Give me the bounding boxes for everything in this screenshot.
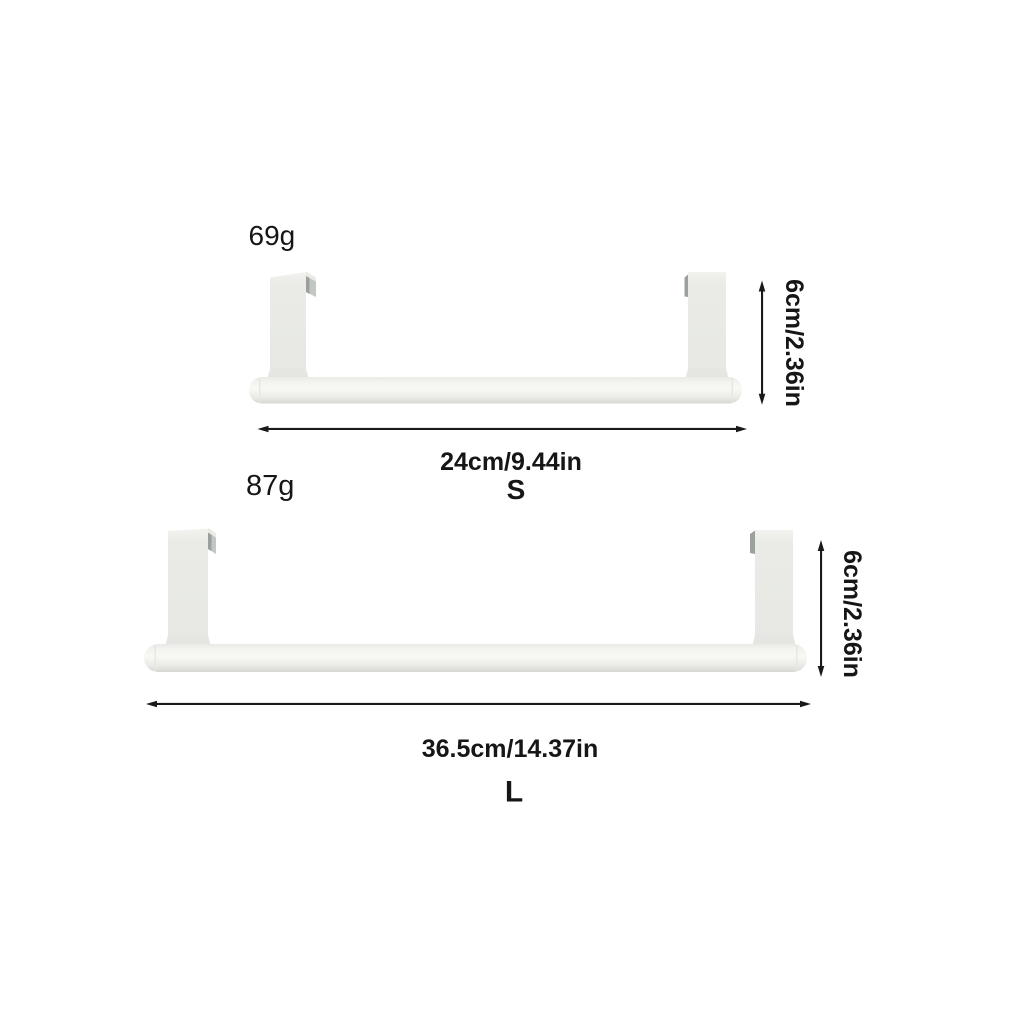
svg-text:24cm/9.44in: 24cm/9.44in [440, 448, 582, 476]
svg-text:87g: 87g [246, 470, 294, 502]
svg-text:36.5cm/14.37in: 36.5cm/14.37in [422, 735, 599, 763]
svg-text:69g: 69g [249, 220, 296, 251]
svg-text:6cm/2.36in: 6cm/2.36in [780, 279, 808, 407]
svg-text:L: L [505, 776, 523, 809]
svg-text:S: S [507, 474, 526, 505]
svg-text:6cm/2.36in: 6cm/2.36in [838, 550, 866, 678]
